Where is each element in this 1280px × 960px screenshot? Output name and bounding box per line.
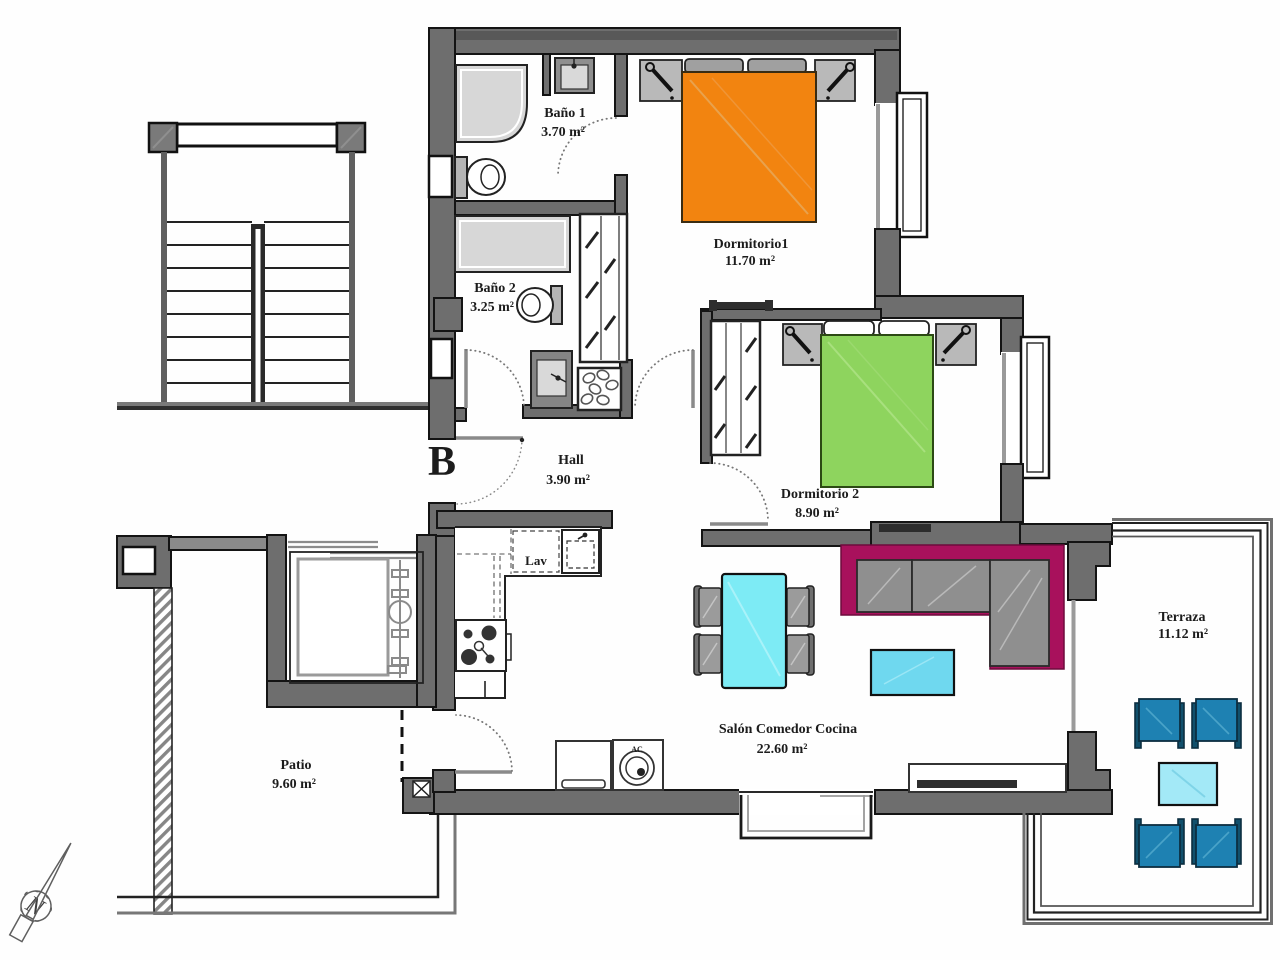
svg-text:Lav: Lav xyxy=(525,553,547,568)
svg-text:B: B xyxy=(428,439,456,485)
svg-text:AC: AC xyxy=(631,745,643,754)
svg-text:11.12 m²: 11.12 m² xyxy=(1158,627,1208,642)
svg-text:9.60 m²: 9.60 m² xyxy=(272,777,316,792)
svg-text:22.60 m²: 22.60 m² xyxy=(757,742,808,757)
svg-text:11.70 m²: 11.70 m² xyxy=(725,254,775,269)
svg-text:Baño 2: Baño 2 xyxy=(474,281,516,296)
svg-text:3.25 m²: 3.25 m² xyxy=(470,300,514,315)
svg-text:Dormitorio 2: Dormitorio 2 xyxy=(781,487,859,502)
svg-text:3.90 m²: 3.90 m² xyxy=(546,473,590,488)
svg-text:3.70 m²: 3.70 m² xyxy=(541,125,585,140)
svg-text:Terraza: Terraza xyxy=(1159,610,1206,625)
svg-text:Dormitorio1: Dormitorio1 xyxy=(714,237,789,252)
svg-text:Hall: Hall xyxy=(558,453,584,468)
svg-text:Baño 1: Baño 1 xyxy=(544,106,586,121)
svg-text:Salón Comedor Cocina: Salón Comedor Cocina xyxy=(719,722,857,737)
svg-text:Patio: Patio xyxy=(280,758,311,773)
svg-text:8.90 m²: 8.90 m² xyxy=(795,506,839,521)
